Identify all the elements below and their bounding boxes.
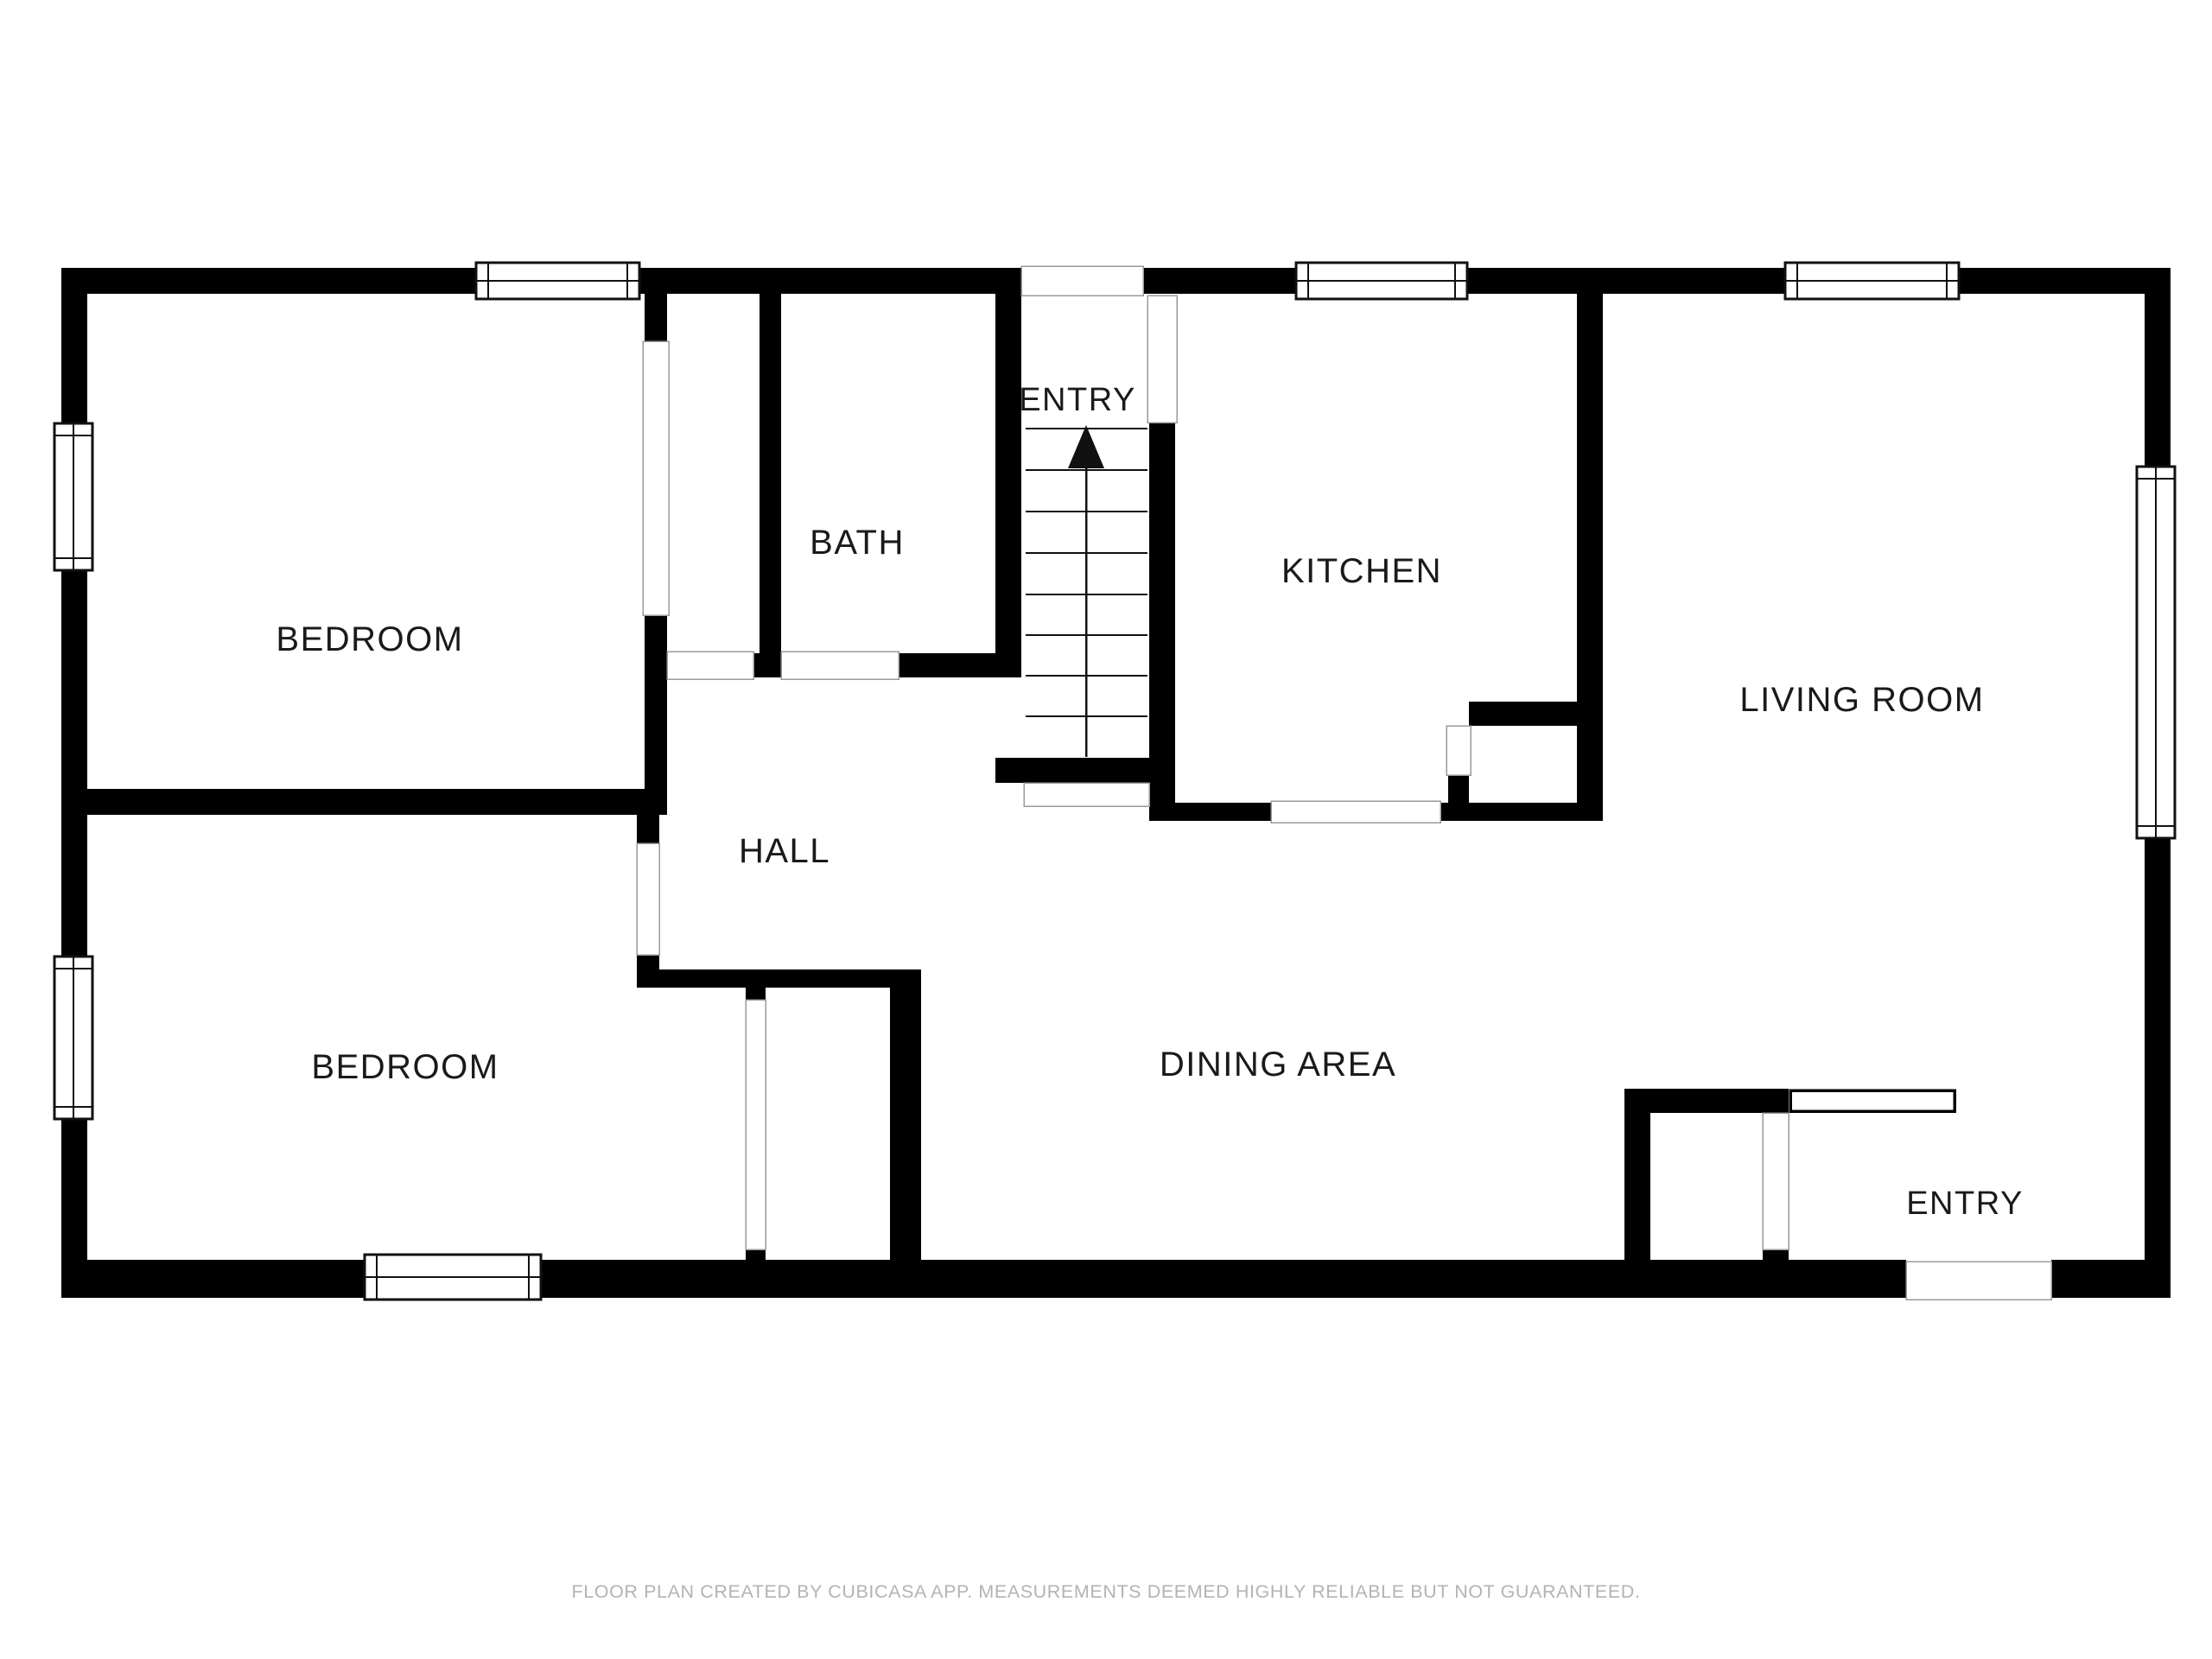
- room-label-hall: HALL: [739, 832, 830, 870]
- kitchen-closet-opening: [1446, 726, 1471, 775]
- wall-segment: [890, 969, 921, 1260]
- room-label-bath: BATH: [810, 524, 905, 562]
- room-label-bedroom-1: BEDROOM: [276, 620, 463, 658]
- floor-plan: BEDROOM BATH ENTRY KITCHEN LIVING ROOM H…: [0, 0, 2212, 1659]
- wall-segment: [61, 570, 87, 957]
- kitchen-dining-opening: [1271, 801, 1440, 823]
- wall-segment: [62, 789, 667, 815]
- wall-segment: [1959, 268, 2171, 294]
- wall-segment: [899, 653, 1021, 677]
- room-label-bedroom-2: BEDROOM: [311, 1048, 499, 1086]
- entry-kitchen-opening: [1147, 296, 1177, 423]
- front-door-opening: [1021, 266, 1143, 296]
- room-label-living-room: LIVING ROOM: [1739, 681, 1984, 719]
- wall-segment: [753, 653, 781, 677]
- entry-closet-door-opening: [1763, 1113, 1789, 1249]
- bedroom2-closet-opening: [746, 1000, 766, 1249]
- window-icon: [54, 423, 92, 570]
- wall-segment: [2051, 1260, 2171, 1298]
- wall-segment: [541, 1260, 1906, 1298]
- window-icon: [2137, 467, 2175, 838]
- wall-segment: [995, 758, 1175, 783]
- wall-segment: [1469, 702, 1603, 726]
- wall-segment: [2145, 838, 2171, 1298]
- wall-segment: [1143, 268, 1296, 294]
- wall-segment: [642, 969, 921, 988]
- door-openings: [637, 266, 2051, 1300]
- room-label-kitchen: KITCHEN: [1281, 552, 1442, 590]
- entry-door-leaf: [1790, 1090, 1955, 1111]
- footer-disclaimer: FLOOR PLAN CREATED BY CUBICASA APP. MEAS…: [0, 1581, 2212, 1603]
- bath-door-opening: [781, 652, 899, 679]
- window-icon: [1785, 263, 1959, 299]
- room-label-entry-top: ENTRY: [1019, 382, 1136, 418]
- wall-segment: [746, 988, 766, 1000]
- back-entry-door-opening: [1906, 1262, 2051, 1300]
- wall-segment: [1624, 1089, 1789, 1113]
- wall-segment: [1440, 803, 1603, 821]
- corridor-hall-opening: [667, 652, 753, 679]
- wall-segment: [61, 268, 87, 423]
- window-icon: [54, 957, 92, 1119]
- window-icon: [476, 263, 639, 299]
- room-label-dining-area: DINING AREA: [1160, 1046, 1396, 1084]
- wall-segment: [760, 294, 781, 677]
- stairs: [1026, 425, 1147, 757]
- wall-segment: [2145, 268, 2171, 467]
- wall-segment: [1624, 1089, 1650, 1260]
- wall-segment: [995, 294, 1021, 677]
- wall-segment: [645, 294, 667, 341]
- wall-segment: [1763, 1249, 1789, 1260]
- wall-segment: [1149, 803, 1271, 821]
- wall-segment: [1577, 294, 1603, 821]
- wall-segment: [639, 268, 1021, 294]
- wall-segment: [1467, 268, 1785, 294]
- room-label-entry-bottom: ENTRY: [1906, 1185, 2024, 1222]
- wall-segment: [637, 815, 659, 843]
- window-icon: [365, 1255, 541, 1300]
- bedroom2-door-opening: [637, 843, 659, 955]
- stairs-bottom-opening: [1024, 783, 1149, 806]
- wall-segment: [746, 1249, 766, 1260]
- wall-segment: [62, 1260, 365, 1298]
- stairs-up-arrow-icon: [1068, 425, 1104, 468]
- wall-segment: [62, 268, 476, 294]
- window-icon: [1296, 263, 1467, 299]
- wall-segment: [1149, 423, 1175, 806]
- bedroom1-closet-opening: [643, 341, 669, 615]
- wall-segment: [645, 615, 667, 815]
- floor-plan-page: BEDROOM BATH ENTRY KITCHEN LIVING ROOM H…: [0, 0, 2212, 1659]
